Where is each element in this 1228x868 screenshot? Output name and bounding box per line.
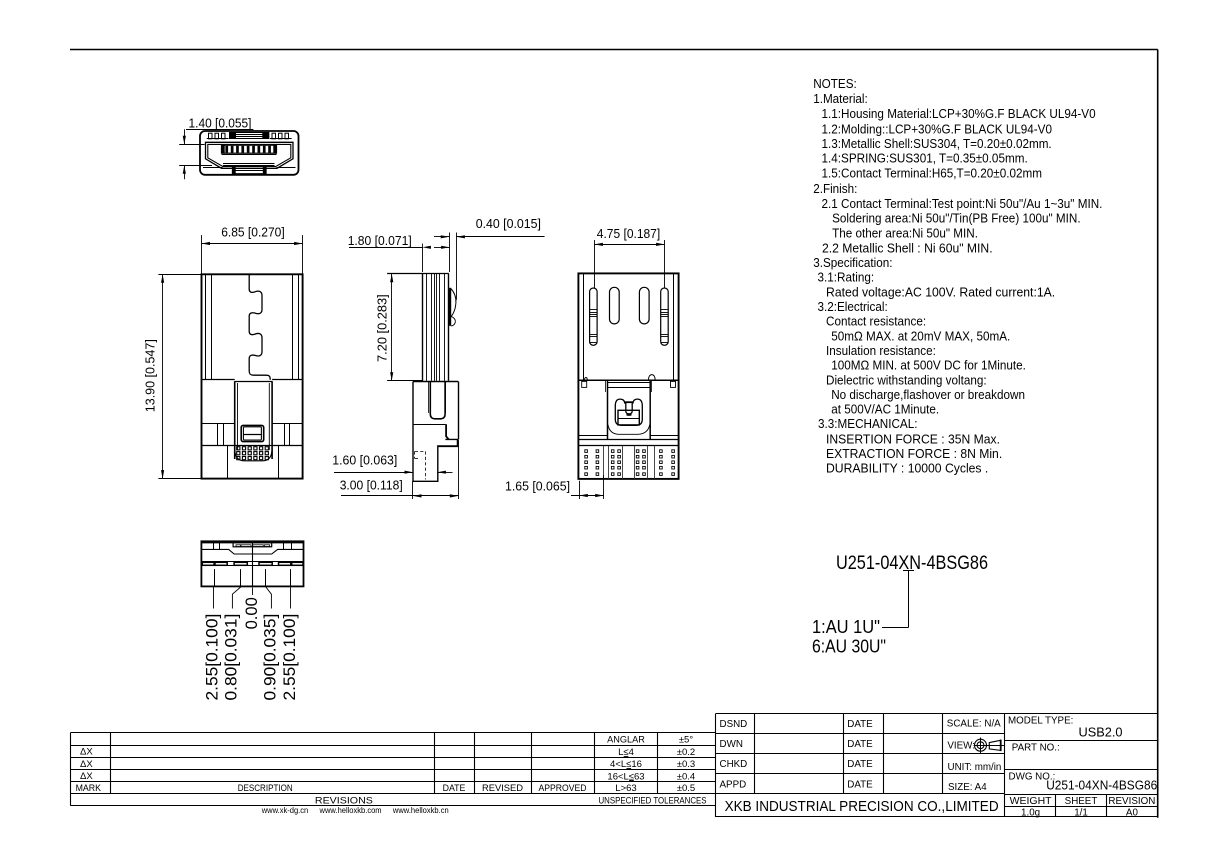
svg-text:1.3:Metallic Shell:SUS304, T=0: 1.3:Metallic Shell:SUS304, T=0.20±0.02mm… — [822, 136, 1052, 151]
svg-text:100MΩ MIN. at 500V DC for 1Min: 100MΩ MIN. at 500V DC for 1Minute. — [831, 358, 1026, 373]
svg-text:ANGLAR: ANGLAR — [607, 735, 645, 746]
svg-text:U251-04XN-4BSG86: U251-04XN-4BSG86 — [1046, 778, 1157, 793]
svg-text:WEIGHT: WEIGHT — [1010, 796, 1052, 807]
svg-text:±0.3: ±0.3 — [677, 759, 695, 770]
svg-text:0.80[0.031]: 0.80[0.031] — [222, 614, 241, 701]
svg-text:3.Specification:: 3.Specification: — [813, 255, 892, 270]
svg-text:DATE: DATE — [443, 783, 466, 793]
svg-text:REVISION: REVISION — [1108, 796, 1155, 807]
svg-text:2.55[0.100]: 2.55[0.100] — [203, 614, 222, 701]
svg-text:ΔX: ΔX — [80, 771, 93, 782]
svg-text:USB2.0: USB2.0 — [1079, 725, 1123, 739]
svg-text:2.55[0.100]: 2.55[0.100] — [280, 614, 299, 701]
svg-text:REVISIONS: REVISIONS — [315, 796, 373, 806]
svg-text:1/1: 1/1 — [1074, 808, 1088, 819]
svg-text:±0.5: ±0.5 — [677, 783, 695, 794]
svg-text:XKB INDUSTRIAL PRECISION CO.,L: XKB INDUSTRIAL PRECISION CO.,LIMITED — [725, 799, 999, 815]
svg-text:L>63: L>63 — [615, 783, 636, 794]
svg-text:www.xk-dg.cn www.helloxkb.com: www.xk-dg.cn www.helloxkb.com www.hellox… — [261, 806, 449, 815]
svg-text:±5°: ±5° — [679, 735, 693, 746]
svg-text:Insulation resistance:: Insulation resistance: — [826, 343, 936, 358]
svg-text:1.2:Molding::LCP+30%G.F BLACK: 1.2:Molding::LCP+30%G.F BLACK UL94-V0 — [822, 121, 1053, 136]
svg-text:SIZE: A4: SIZE: A4 — [948, 782, 987, 793]
svg-text:UNIT: mm/in: UNIT: mm/in — [948, 762, 1002, 773]
svg-text:1.40 [0.055]: 1.40 [0.055] — [189, 116, 252, 131]
svg-text:DSND: DSND — [720, 719, 748, 730]
svg-text:Rated voltage:AC 100V. Rate: Rated voltage:AC 100V. Rated current:1A. — [826, 284, 1055, 299]
svg-text:50mΩ MAX. at 20mV MAX, 50mA.: 50mΩ MAX. at 20mV MAX, 50mA. — [831, 328, 1010, 343]
svg-text:3.3:MECHANICAL:: 3.3:MECHANICAL: — [818, 416, 918, 431]
svg-text:±0.2: ±0.2 — [677, 747, 695, 758]
svg-text:EXTRACTION FORCE : 8N Min.: EXTRACTION FORCE : 8N Min. — [826, 446, 1002, 461]
svg-text:NOTES:: NOTES: — [813, 76, 857, 91]
svg-text:ΔX: ΔX — [80, 759, 93, 770]
svg-text:VIEW:: VIEW: — [947, 741, 975, 752]
svg-text:2.1 Contact Terminal:Test poin: 2.1 Contact Terminal:Test point:Ni 50u"/… — [822, 196, 1103, 211]
svg-text:1.5:Contact Terminal:H65,T=0.2: 1.5:Contact Terminal:H65,T=0.20±0.02mm — [822, 166, 1043, 181]
svg-text:APPROVED: APPROVED — [539, 783, 587, 793]
svg-text:1.Material:: 1.Material: — [813, 91, 868, 106]
svg-text:REVISED: REVISED — [482, 783, 523, 793]
svg-text:DESCRIPTION: DESCRIPTION — [238, 783, 293, 793]
svg-text:13.90 [0.547]: 13.90 [0.547] — [143, 339, 158, 412]
svg-text:SHEET: SHEET — [1065, 796, 1098, 807]
svg-text:at 500V/AC 1Minute.: at 500V/AC 1Minute. — [831, 402, 939, 417]
svg-text:UNSPECIFIED TOLERANCES: UNSPECIFIED TOLERANCES — [599, 796, 707, 806]
svg-text:SCALE: N/A: SCALE: N/A — [947, 719, 1001, 730]
svg-text:0.90[0.035]: 0.90[0.035] — [261, 614, 280, 701]
svg-text:The other area:Ni 50u" MIN.: The other area:Ni 50u" MIN. — [832, 225, 978, 240]
svg-text:0.00: 0.00 — [242, 597, 261, 629]
svg-text:4.75 [0.187]: 4.75 [0.187] — [597, 226, 660, 241]
svg-text:DWN: DWN — [720, 739, 743, 750]
svg-text:CHKD: CHKD — [720, 759, 748, 770]
svg-text:MODEL TYPE:: MODEL TYPE: — [1008, 716, 1073, 727]
svg-text:Contact resistance:: Contact resistance: — [826, 314, 926, 329]
svg-text:3.1:Rating:: 3.1:Rating: — [818, 270, 875, 285]
svg-text:3.2:Electrical:: 3.2:Electrical: — [818, 299, 888, 314]
svg-text:1.4:SPRING:SUS301, T=0.35±0.05: 1.4:SPRING:SUS301, T=0.35±0.05mm. — [822, 151, 1028, 166]
svg-text:0.40 [0.015]: 0.40 [0.015] — [476, 216, 541, 231]
svg-text:No discharge,flashover or brea: No discharge,flashover or breakdown — [831, 387, 1025, 402]
svg-text:2.Finish:: 2.Finish: — [813, 181, 857, 196]
svg-text:1.60 [0.063]: 1.60 [0.063] — [332, 452, 397, 467]
svg-text:7.20 [0.283]: 7.20 [0.283] — [374, 294, 389, 362]
svg-text:DATE: DATE — [847, 719, 873, 730]
svg-text:1.0g: 1.0g — [1021, 808, 1040, 819]
svg-text:PART NO.:: PART NO.: — [1012, 743, 1060, 754]
svg-text:±0.4: ±0.4 — [677, 771, 695, 782]
svg-text:1.80 [0.071]: 1.80 [0.071] — [348, 233, 412, 248]
svg-text:Dielectric withstanding voltan: Dielectric withstanding voltang: — [826, 372, 987, 387]
svg-text:INSERTION FORCE : 35N Max.: INSERTION FORCE : 35N Max. — [826, 431, 1000, 446]
svg-text:Soldering area:Ni 50u"/Tin(PB: Soldering area:Ni 50u"/Tin(PB Free) 100u… — [832, 211, 1081, 226]
svg-text:MARK: MARK — [76, 783, 102, 793]
svg-text:APPD: APPD — [720, 779, 747, 790]
svg-text:DATE: DATE — [847, 779, 873, 790]
svg-text:4<L≤16: 4<L≤16 — [610, 759, 642, 770]
svg-text:1:AU 1U": 1:AU 1U" — [812, 617, 880, 637]
svg-text:3.00 [0.118]: 3.00 [0.118] — [340, 478, 403, 493]
svg-text:16<L≤63: 16<L≤63 — [607, 771, 644, 782]
svg-text:ΔX: ΔX — [80, 747, 93, 758]
svg-text:6.85 [0.270]: 6.85 [0.270] — [221, 225, 285, 240]
svg-text:DATE: DATE — [847, 739, 873, 750]
svg-text:DURABILITY : 10000 Cycles .: DURABILITY : 10000 Cycles . — [826, 461, 988, 476]
svg-text:A0: A0 — [1126, 808, 1139, 819]
svg-text:6:AU 30U": 6:AU 30U" — [812, 637, 886, 657]
svg-text:1.1:Housing Material:LCP+30%G.: 1.1:Housing Material:LCP+30%G.F BLACK UL… — [822, 106, 1096, 121]
svg-text:1.65 [0.065]: 1.65 [0.065] — [505, 479, 570, 494]
svg-text:DATE: DATE — [847, 759, 873, 770]
svg-text:2.2 Metallic Shell : Ni 60u": 2.2 Metallic Shell : Ni 60u" MIN. — [822, 240, 993, 255]
